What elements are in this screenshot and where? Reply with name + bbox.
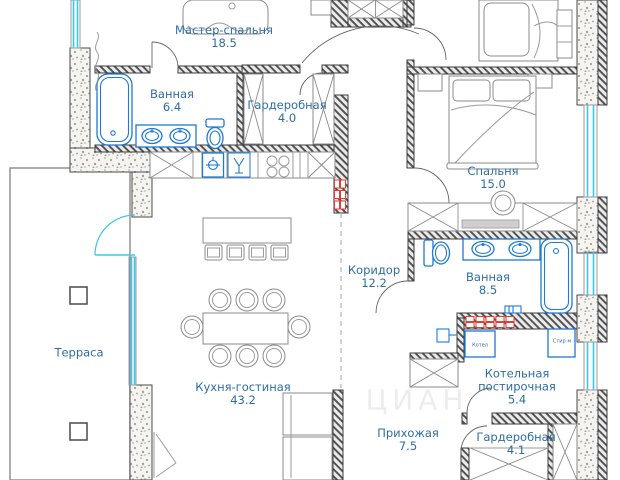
towel-rail: [505, 306, 521, 313]
master-closets: [348, 0, 403, 18]
room-label-terrace: Терраса: [54, 347, 103, 360]
room-name: Терраса: [54, 347, 103, 360]
room-area: 12.2: [348, 277, 400, 290]
watermark: ЦИАН: [366, 384, 469, 417]
dining-table: [181, 289, 310, 367]
toilet-1: [206, 119, 224, 149]
water-heater: [437, 329, 457, 342]
radiator-corridor: [335, 180, 346, 209]
boiler-label: Котел: [472, 342, 488, 348]
room-area: 6.4: [150, 101, 194, 114]
room-area: 5.4: [478, 394, 556, 407]
double-sink-1: [136, 125, 196, 147]
living-room-door: [154, 432, 176, 478]
radiator-wall-grid: [466, 317, 514, 328]
room-label-boiler-laundry: Котельная постирочная 5.4: [478, 368, 556, 407]
terrace-column: [70, 423, 87, 440]
terrace-outline: [10, 168, 130, 480]
room-area: 8.5: [466, 284, 510, 297]
washer-label: Стир м: [552, 338, 570, 344]
room-label-master-bedroom: Мастер-спальня 18.5: [175, 24, 273, 50]
room-area: 18.5: [175, 37, 273, 50]
bathtub-2: [541, 239, 572, 313]
kitchen-island: [203, 218, 291, 260]
double-sink-2: [463, 239, 540, 260]
room-label-bathroom-2: Ванная 8.5: [466, 271, 510, 297]
room-label-wardrobe-1: Гардеробная 4.0: [247, 99, 326, 125]
floorplan-page: Мастер-спальня 18.5 Ванная 6.4 Гардеробн…: [0, 0, 620, 480]
floorplan-canvas: [0, 0, 620, 480]
top-right-bed: [479, 0, 572, 61]
room-area: 4.1: [476, 444, 555, 457]
terrace-column: [70, 287, 87, 304]
room-label-hallway: Прихожая 7.5: [377, 427, 439, 453]
room-label-kitchen-living: Кухня-гостиная 43.2: [195, 381, 290, 407]
room-label-wardrobe-2: Гардеробная 4.1: [476, 431, 555, 457]
toilet-2: [424, 240, 450, 266]
room-area: 7.5: [377, 440, 439, 453]
room-area: 15.0: [467, 178, 518, 191]
room-area: 4.0: [247, 112, 326, 125]
bedroom-bed: [418, 74, 552, 169]
room-label-bathroom-1: Ванная 6.4: [150, 88, 194, 114]
room-label-bedroom: Спальня 15.0: [467, 165, 518, 191]
room-area: 43.2: [195, 394, 290, 407]
kitchen-sink-icon: [203, 153, 224, 177]
kitchen-counter: [150, 152, 335, 178]
bathtub-1: [97, 74, 132, 145]
bedroom-closet-row: [408, 191, 577, 231]
room-label-corridor: Коридор 12.2: [348, 264, 400, 290]
terrace-door: [95, 215, 135, 255]
